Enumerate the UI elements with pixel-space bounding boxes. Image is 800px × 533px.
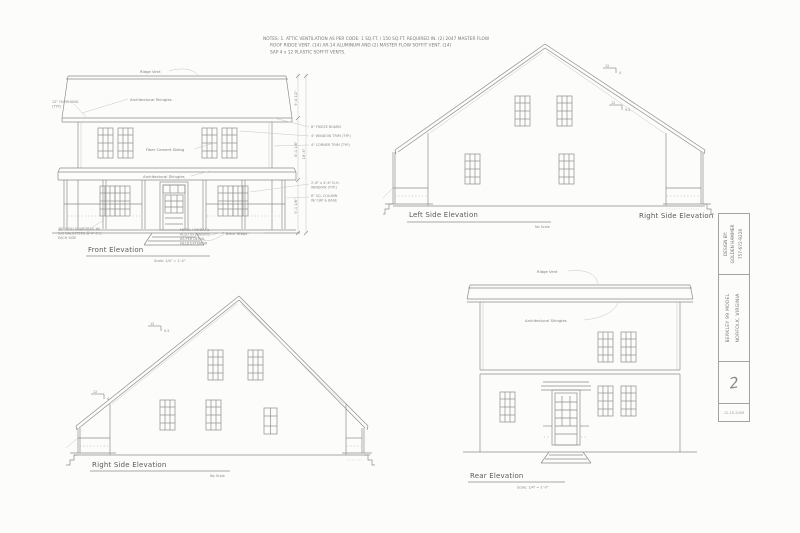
side-walls	[74, 404, 370, 455]
rear-upper-window	[598, 332, 613, 362]
overhang-note: (TYP.)	[52, 105, 62, 109]
column-note: W/ CAP & BASE	[311, 199, 337, 203]
window-size-note: 2'-8" x 4'-6" D.H.	[311, 181, 340, 185]
right-side-title: Right Side Elevation	[92, 461, 167, 469]
ridge-vent-label: Ridge Vent	[140, 69, 161, 74]
handrail-note: HELD EXTERIOR	[180, 242, 208, 246]
side-window	[160, 400, 175, 430]
frieze-note: 8" FRIEZE BOARD	[311, 125, 341, 129]
pitch-run: 12	[605, 64, 609, 68]
rear-elevation-drawing: Ridge Vent Architectural Shingles Rear E…	[455, 258, 705, 508]
company-name: GOLDEN HAMMER	[730, 225, 737, 264]
designed-by: DESIGN BY:	[723, 225, 730, 264]
handrail-note: METAL HANDRAIL	[180, 228, 210, 232]
side-walls	[393, 133, 705, 206]
title-block-designer: DESIGN BY: GOLDEN HAMMER 757-672-9220	[719, 214, 749, 275]
front-scale: Scale: 1/4" = 1'-0"	[154, 259, 186, 263]
side-left-porch	[66, 428, 116, 465]
side-right-porch	[342, 428, 375, 465]
side-window	[206, 400, 221, 430]
front-roof	[62, 76, 292, 122]
rear-second-floor	[480, 302, 680, 374]
rear-roof	[467, 285, 693, 302]
dim-roof: 9'-4 1/2"	[294, 90, 298, 106]
corner-trim-note: 4" CORNER TRIM (TYP.)	[311, 143, 351, 147]
upper-window	[118, 128, 133, 158]
pitch-marker-upper: 12 9.5	[148, 322, 169, 333]
front-second-floor-wall	[78, 122, 272, 168]
shingles-label: Architectural Shingles	[525, 318, 567, 323]
rear-scale: Scale: 1/4" = 1'-0"	[517, 486, 549, 490]
title-block: DESIGN BY: GOLDEN HAMMER 757-672-9220 BE…	[718, 213, 750, 422]
guardrail-note: 2x2 BALUSTERS @ 4" O.C.	[58, 232, 103, 236]
side-left-porch	[383, 152, 433, 214]
attic-window	[248, 350, 263, 380]
left-side-elevation-drawing: 12 4 12 9.5 Left Side Elevation No Scale…	[383, 36, 718, 236]
small-window	[264, 408, 277, 434]
right-side-scale: No Scale	[210, 474, 225, 478]
side-right-porch	[663, 152, 714, 214]
rear-lower-window	[500, 392, 515, 422]
lower-window	[100, 186, 115, 216]
side-roof	[395, 44, 705, 154]
pitch-marker-lower: 12 4	[91, 390, 109, 401]
drawing-sheet: NOTES: 1. ATTIC VENTILATION AS PER CODE:…	[0, 0, 800, 533]
sheet-number: 2	[728, 373, 740, 392]
attic-window	[208, 350, 223, 380]
front-door	[160, 182, 188, 230]
right-side-top-title: Right Side Elevation	[639, 212, 714, 220]
brick-steps-label: Brick Steps	[226, 231, 247, 236]
side-window	[559, 154, 574, 184]
front-elevation-drawing: Ridge Vent Architectural Shingles Fiber …	[48, 28, 348, 273]
front-labels: Ridge Vent Architectural Shingles Fiber …	[52, 69, 264, 263]
pitch-run: 12	[150, 322, 154, 326]
dim-first: 9'-1 1/8"	[294, 198, 298, 214]
project-name: BERKLEY 99 MODEL	[724, 293, 734, 342]
rear-title: Rear Elevation	[470, 472, 524, 480]
dim-second: 8'-1 1/8"	[294, 141, 298, 157]
ridge-vent-label: Ridge Vent	[537, 269, 558, 274]
rear-first-floor	[463, 374, 697, 463]
pitch-run: 12	[611, 101, 615, 105]
upper-window	[202, 128, 217, 158]
project-location: NORFOLK, VIRGINIA	[734, 293, 744, 342]
lower-window	[115, 186, 130, 216]
pitch-rise: 4	[107, 397, 109, 401]
dim-total: 18'-5"	[302, 148, 306, 159]
porch-railing	[64, 204, 285, 216]
phone-number: 757-672-9220	[738, 225, 745, 264]
guardrail-note: 36" HIGH GUARDRAIL W/	[58, 227, 101, 231]
right-side-elevation-drawing: 12 9.5 12 4 Right Side Elevation No Scal…	[50, 278, 385, 493]
rear-lower-window	[621, 386, 636, 416]
attic-window	[557, 96, 572, 126]
column-note: 8" SQ. COLUMN	[311, 194, 338, 198]
siding-label: Fiber Cement Siding	[146, 147, 185, 152]
overhang-note: 12" OVERHANG	[52, 100, 79, 104]
window-trim-note: 4" WINDOW TRIM (TYP.)	[311, 134, 352, 138]
window-size-note: WINDOW (TYP.)	[311, 186, 338, 190]
rear-upper-window	[621, 332, 636, 362]
side-roof	[76, 296, 368, 430]
upper-window	[222, 128, 237, 158]
front-dimensions: 9'-4 1/2" 8'-1 1/8" 9'-1 1/8" 18'-5" 8" …	[240, 74, 352, 235]
handrail-note: AS PER DETAIL	[180, 237, 205, 241]
shingles-label: Architectural Shingles	[130, 97, 172, 102]
pitch-marker-upper: 12 4	[603, 64, 621, 75]
left-side-title: Left Side Elevation	[409, 211, 478, 219]
guardrail-note: EACH SIDE	[58, 236, 76, 240]
attic-window	[515, 96, 530, 126]
porch-columns	[64, 180, 285, 229]
rear-lower-window	[598, 386, 613, 416]
pitch-rise: 4	[619, 71, 621, 75]
lower-window	[218, 186, 233, 216]
sheet-date: 12-10-2009	[724, 411, 744, 415]
lower-window	[233, 186, 248, 216]
left-side-scale: No Scale	[535, 225, 550, 229]
title-block-sheet-number: 2	[719, 362, 749, 404]
pitch-run: 12	[93, 390, 97, 394]
porch-shingles-label: Architectural Shingles	[143, 174, 185, 179]
handrail-note: ALSO IN LANDING	[180, 233, 211, 237]
pitch-rise: 9.5	[164, 329, 169, 333]
title-block-project: BERKLEY 99 MODEL NORFOLK, VIRGINIA	[719, 275, 749, 362]
front-title: Front Elevation	[88, 246, 143, 254]
side-window	[465, 154, 480, 184]
rear-stoop	[541, 426, 591, 463]
title-block-date: 12-10-2009	[719, 404, 749, 421]
upper-window	[98, 128, 113, 158]
rear-door	[541, 382, 591, 445]
pitch-rise: 9.5	[625, 108, 630, 112]
